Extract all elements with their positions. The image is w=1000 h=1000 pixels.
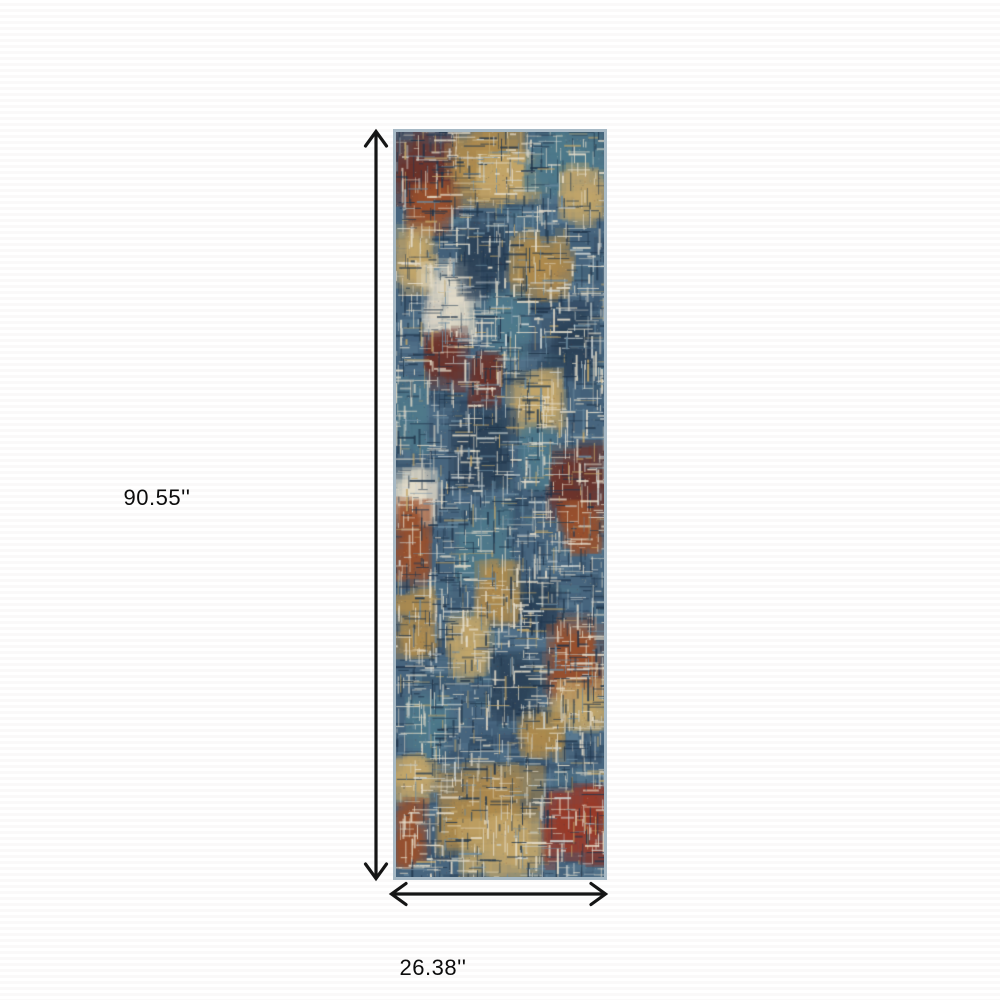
height-arrow-icon <box>366 132 387 879</box>
rug-texture-image <box>396 132 604 877</box>
width-dimension-label: 26.38'' <box>378 955 488 981</box>
rug <box>393 129 607 880</box>
product-dimension-diagram: 90.55'' 26.38'' <box>0 0 1000 1000</box>
height-dimension-label: 90.55'' <box>102 485 212 511</box>
width-arrow-icon <box>392 884 606 905</box>
